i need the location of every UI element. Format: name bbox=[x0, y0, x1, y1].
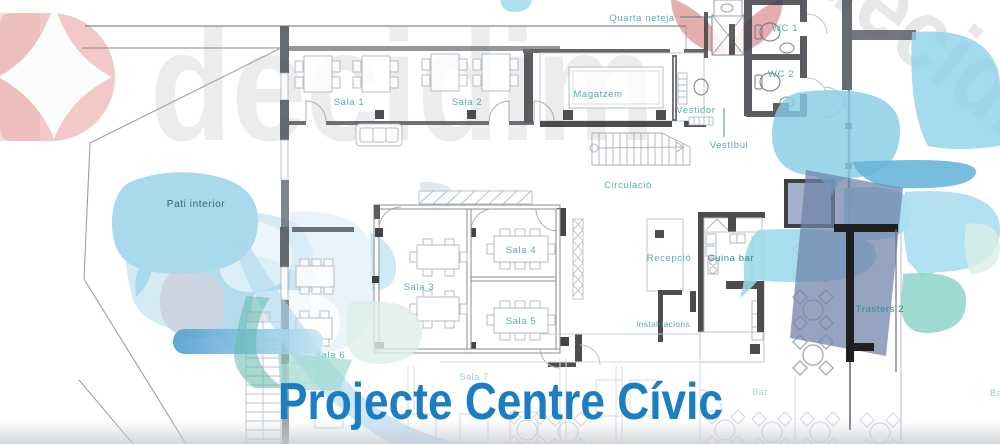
svg-text:Sala 4: Sala 4 bbox=[506, 245, 537, 256]
svg-text:Pati interior: Pati interior bbox=[167, 199, 225, 210]
svg-text:Bar: Bar bbox=[752, 387, 768, 397]
svg-text:Ba: Ba bbox=[990, 388, 1000, 398]
svg-text:Sala 5: Sala 5 bbox=[506, 316, 537, 327]
svg-text:Vestidor: Vestidor bbox=[676, 105, 715, 116]
svg-text:Sala 2: Sala 2 bbox=[452, 97, 483, 108]
svg-text:Trasters 2: Trasters 2 bbox=[856, 304, 904, 315]
svg-text:Circulació: Circulació bbox=[604, 180, 652, 191]
svg-text:Sala 1: Sala 1 bbox=[334, 97, 365, 108]
svg-text:Cuina bar: Cuina bar bbox=[708, 253, 755, 264]
svg-text:Magatzem: Magatzem bbox=[573, 89, 622, 100]
svg-text:Vestíbul: Vestíbul bbox=[710, 140, 749, 151]
svg-text:Instal·lacions: Instal·lacions bbox=[636, 319, 690, 329]
svg-text:Quarta neteja: Quarta neteja bbox=[609, 13, 674, 24]
svg-text:Projecte Centre Cívic: Projecte Centre Cívic bbox=[278, 373, 723, 431]
svg-text:WC 2: WC 2 bbox=[768, 69, 794, 80]
svg-text:Sala 3: Sala 3 bbox=[404, 282, 435, 293]
svg-text:Recepció: Recepció bbox=[647, 253, 691, 264]
